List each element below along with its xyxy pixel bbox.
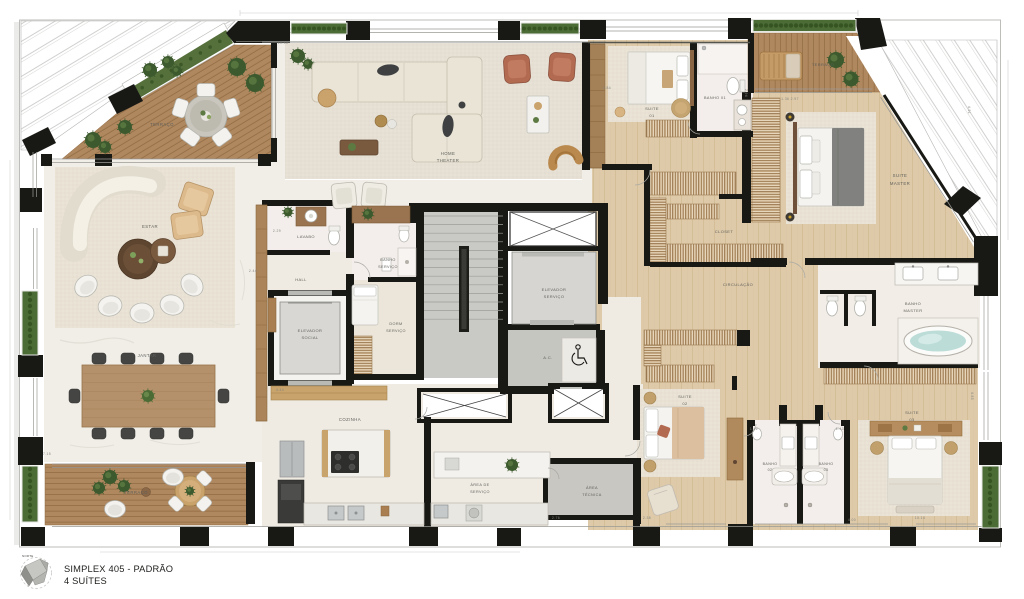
svg-text:DORM: DORM [389,322,402,326]
svg-text:2.29: 2.29 [273,229,281,233]
svg-text:4.00: 4.00 [848,518,856,522]
svg-text:SUITE: SUITE [645,106,659,111]
svg-text:COZINHA: COZINHA [339,417,361,422]
svg-text:TERRAÇO: TERRAÇO [150,122,174,127]
svg-text:4.44: 4.44 [276,388,284,392]
svg-text:SERVIÇO: SERVIÇO [544,294,565,299]
svg-text:02: 02 [768,468,773,472]
svg-text:HOME: HOME [441,151,456,156]
svg-text:03: 03 [824,468,829,472]
svg-text:JANTAR: JANTAR [138,353,157,358]
svg-text:ESTAR: ESTAR [142,224,158,229]
svg-text:2.84: 2.84 [603,86,611,90]
svg-text:TERRAÇO: TERRAÇO [812,62,834,67]
svg-text:CIRCULAÇÃO: CIRCULAÇÃO [723,282,753,287]
svg-text:01: 01 [649,113,655,118]
svg-text:SUITE: SUITE [893,173,908,178]
svg-text:SERVIÇO: SERVIÇO [378,265,398,269]
svg-text:TÉCNICA: TÉCNICA [582,492,602,497]
svg-text:ELEVADOR: ELEVADOR [298,328,323,333]
svg-text:03: 03 [909,417,915,422]
svg-text:NORTE: NORTE [22,554,33,558]
svg-text:10.40: 10.40 [278,41,289,45]
svg-text:2.76: 2.76 [552,516,560,520]
svg-text:1.42: 1.42 [750,427,758,431]
svg-text:1.43: 1.43 [836,427,844,431]
svg-text:SUITE: SUITE [905,410,919,415]
svg-text:ELEVADOR: ELEVADOR [542,287,567,292]
svg-text:BANHO: BANHO [763,462,778,466]
svg-text:MASTER: MASTER [903,308,922,313]
svg-text:02: 02 [682,401,688,406]
svg-text:TERRAÇO: TERRAÇO [124,490,148,495]
svg-text:4.91: 4.91 [967,106,971,114]
svg-text:A.C.: A.C. [543,355,552,360]
svg-text:SUITE: SUITE [678,394,692,399]
svg-text:MASTER: MASTER [890,181,910,186]
svg-text:SERVIÇO: SERVIÇO [470,490,490,494]
svg-text:SOCIAL: SOCIAL [301,335,318,340]
svg-text:2.38: 2.38 [643,516,651,520]
svg-text:SIMPLEX 405 - PADRÃO: SIMPLEX 405 - PADRÃO [64,564,173,574]
svg-text:2.94: 2.94 [744,89,748,97]
svg-text:THEATER: THEATER [437,158,460,163]
svg-text:ÁREA DE: ÁREA DE [470,483,489,487]
svg-text:CLOSET: CLOSET [715,229,734,234]
svg-text:HALL: HALL [295,277,307,282]
svg-text:SERVIÇO: SERVIÇO [386,329,406,333]
svg-text:1.36 2.97: 1.36 2.97 [781,97,799,101]
svg-text:4 SUÍTES: 4 SUÍTES [64,576,107,586]
svg-text:2.44: 2.44 [249,269,257,273]
svg-text:4.85: 4.85 [970,392,974,400]
svg-text:10.14: 10.14 [915,516,926,520]
svg-text:7.15: 7.15 [43,452,51,456]
svg-text:BANHO: BANHO [380,258,396,262]
svg-text:BANHO: BANHO [905,301,921,306]
svg-text:BANHO 01: BANHO 01 [704,96,726,100]
svg-text:BANHO: BANHO [819,462,834,466]
svg-text:LAVABO: LAVABO [297,234,315,239]
svg-text:ÁREA: ÁREA [586,486,598,490]
